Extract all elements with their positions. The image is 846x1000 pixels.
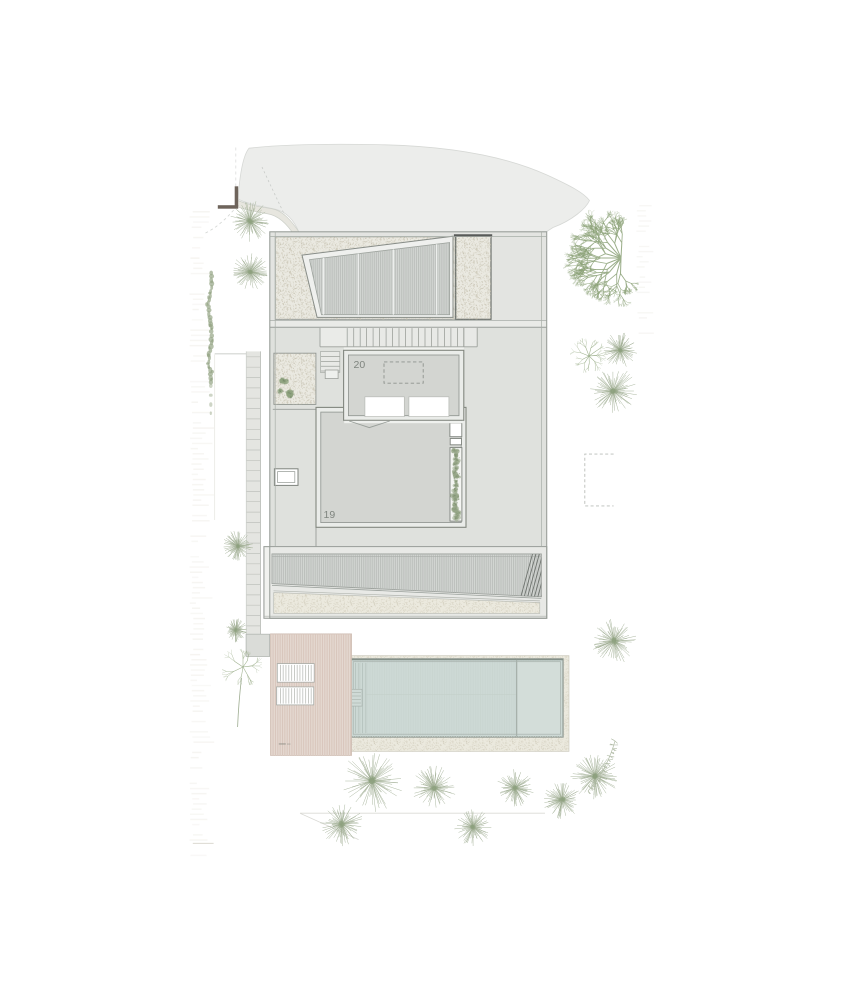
svg-text:20: 20 (354, 359, 366, 371)
svg-text:19: 19 (324, 509, 336, 521)
